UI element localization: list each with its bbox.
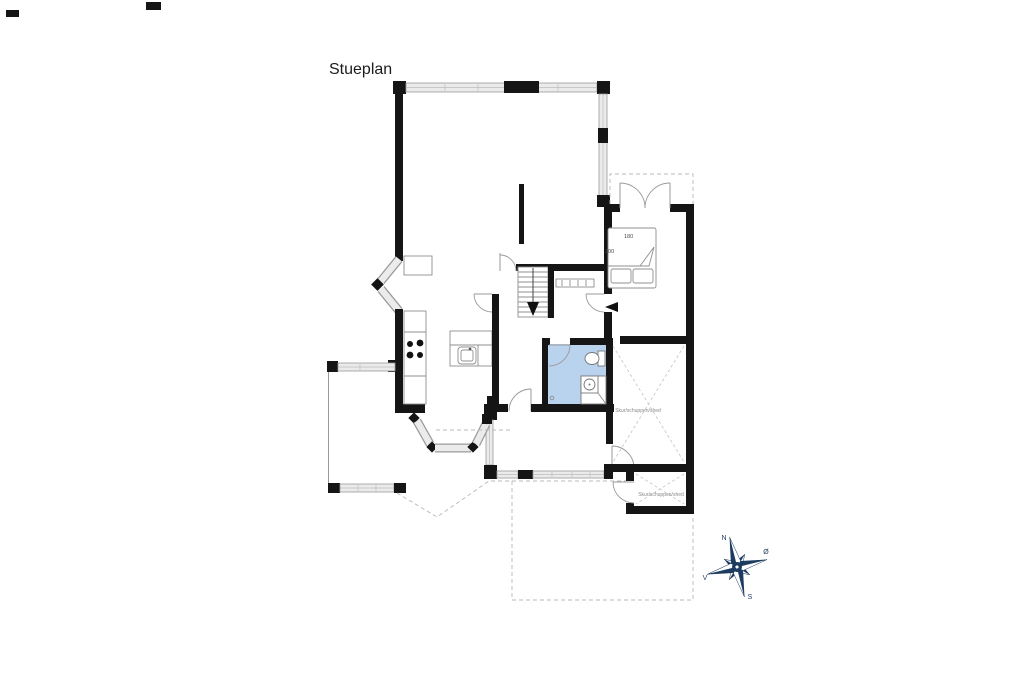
- shed-small: Skur/schuppen/shed: [613, 472, 694, 514]
- shed-small-label: Skur/schuppen/shed: [638, 492, 684, 498]
- glass-bay: [408, 412, 492, 452]
- compass-label-east: Ø: [763, 549, 769, 556]
- door-shed-small: [613, 482, 634, 503]
- compass-label-north: N: [721, 535, 726, 542]
- kitchen-island: [450, 331, 492, 366]
- bed-length-label: 200: [605, 249, 614, 255]
- bed-width-label: 180: [624, 234, 633, 240]
- door-living-hall: [500, 253, 516, 271]
- bottom-room: [484, 404, 613, 479]
- faucet: [469, 348, 472, 351]
- stairs: [518, 266, 554, 318]
- shed-large: Skur/schuppen/shed: [604, 346, 694, 472]
- scan-artifacts: [6, 2, 161, 17]
- shower-unit: [581, 376, 606, 404]
- compass-label-west: V: [703, 575, 708, 582]
- compass-label-south: S: [748, 594, 753, 601]
- door-hall-bottom-room: [509, 389, 531, 411]
- door-hall-bedroom: [586, 294, 604, 312]
- entrance-arrow: [605, 302, 618, 312]
- floor-plan-page: Stueplan: [0, 0, 1024, 682]
- wardrobe: [556, 279, 594, 287]
- french-doors: [620, 183, 670, 208]
- toilet: [585, 351, 605, 366]
- interior-partition-wall: [519, 184, 524, 244]
- floor-plan-svg: Stueplan: [0, 0, 1024, 682]
- terrace-outline: [512, 481, 693, 600]
- page-title: Stueplan: [329, 61, 392, 78]
- bed-pillow: [633, 269, 653, 283]
- bed-pillow: [611, 269, 631, 283]
- shed-large-label: Skur/schuppen/shed: [615, 408, 661, 414]
- bay-window: [371, 252, 403, 318]
- bed: 180 200: [605, 228, 656, 288]
- kitchen-counter: [404, 311, 426, 404]
- bathroom: [542, 338, 614, 412]
- kitchen: [404, 311, 492, 404]
- sideboard: [404, 256, 432, 275]
- sunroom-roofline: [397, 481, 512, 517]
- door-living-hall-lower: [474, 294, 492, 312]
- roof-overhang: [610, 174, 693, 204]
- compass-rose: N Ø S V: [699, 529, 774, 604]
